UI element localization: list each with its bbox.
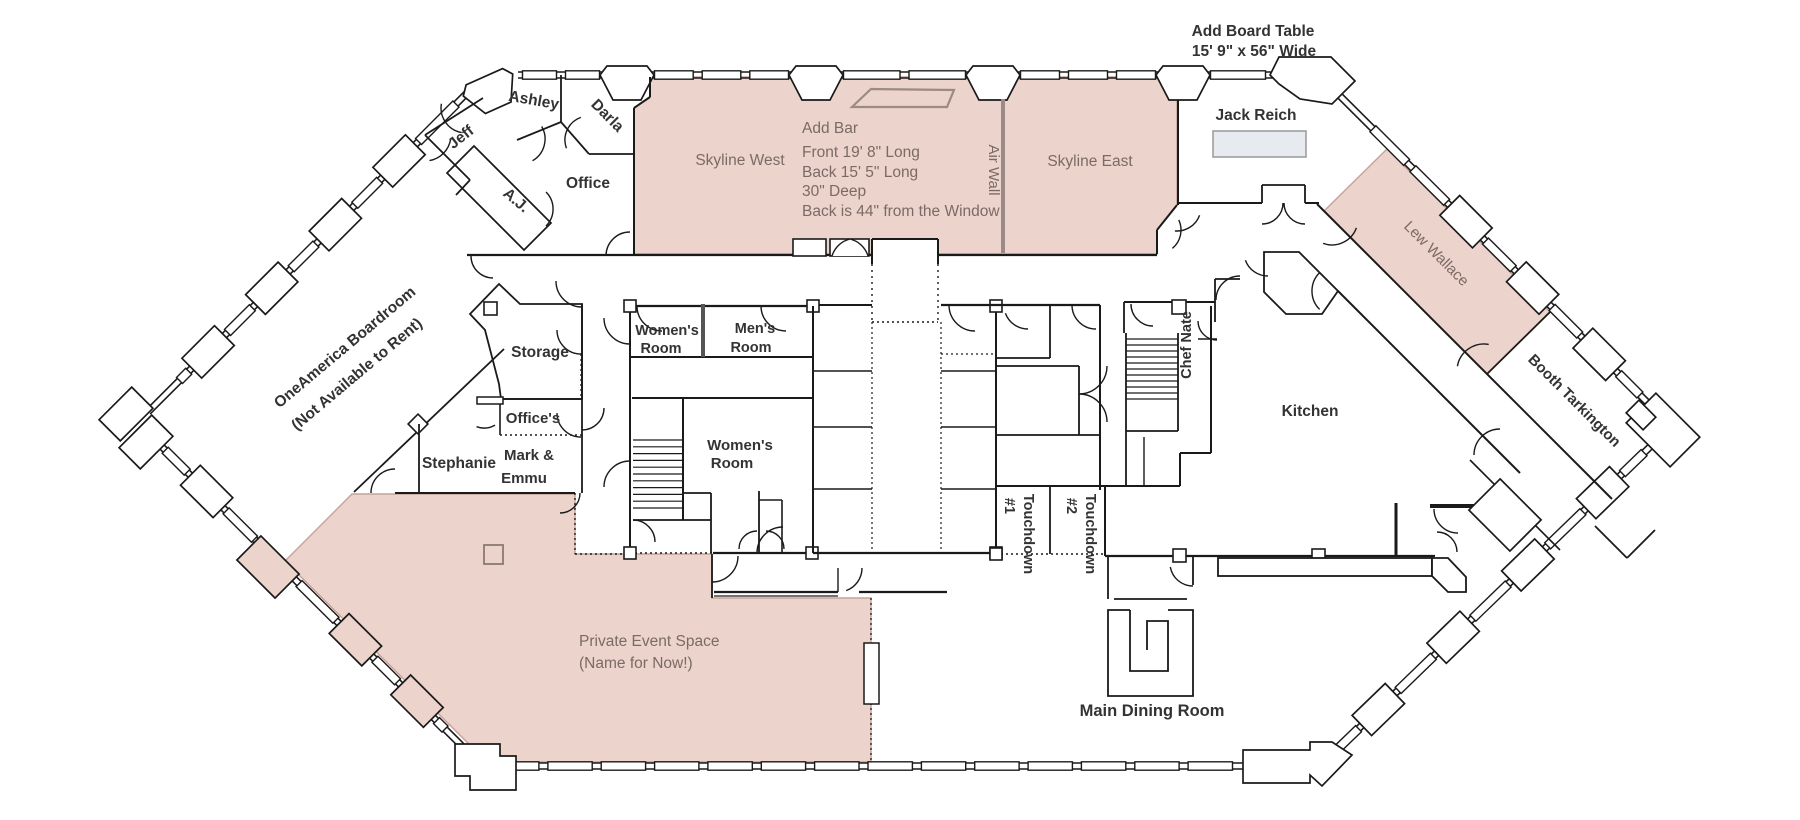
svg-text:Office: Office: [566, 175, 610, 192]
svg-text:Touchdown: Touchdown: [1082, 494, 1098, 574]
svg-text:Emmu: Emmu: [501, 470, 547, 487]
svg-text:Women's: Women's: [707, 437, 773, 454]
svg-text:#1: #1: [1001, 498, 1017, 514]
svg-text:#2: #2: [1063, 498, 1079, 514]
svg-text:Room: Room: [711, 455, 754, 472]
svg-text:Kitchen: Kitchen: [1282, 403, 1339, 420]
svg-text:Chef Nate: Chef Nate: [1179, 311, 1195, 379]
svg-text:30" Deep: 30" Deep: [802, 183, 866, 200]
svg-text:Main Dining Room: Main Dining Room: [1080, 702, 1225, 720]
svg-text:Storage: Storage: [511, 344, 569, 361]
svg-text:Skyline East: Skyline East: [1047, 153, 1133, 170]
svg-text:Private Event Space: Private Event Space: [579, 633, 719, 650]
svg-text:Air Wall: Air Wall: [985, 144, 1002, 195]
svg-text:Jack Reich: Jack Reich: [1216, 107, 1297, 124]
svg-text:Back is 44" from the Window: Back is 44" from the Window: [802, 203, 1000, 220]
svg-text:Men's: Men's: [735, 321, 776, 337]
svg-text:Women's: Women's: [635, 323, 699, 339]
svg-text:Room: Room: [730, 340, 771, 356]
svg-text:Office's: Office's: [506, 410, 560, 427]
svg-text:Add Bar: Add Bar: [802, 120, 858, 137]
svg-text:Skyline West: Skyline West: [695, 152, 785, 169]
svg-text:Room: Room: [640, 341, 681, 357]
svg-text:15' 9" x 56" Wide: 15' 9" x 56" Wide: [1192, 43, 1317, 60]
svg-text:Back 15' 5" Long: Back 15' 5" Long: [802, 164, 918, 181]
svg-text:(Name for Now!): (Name for Now!): [579, 655, 693, 672]
svg-text:Mark &: Mark &: [504, 447, 554, 464]
svg-text:Stephanie: Stephanie: [422, 455, 496, 472]
svg-text:Add Board Table: Add Board Table: [1192, 23, 1315, 40]
svg-text:Touchdown: Touchdown: [1020, 494, 1036, 574]
svg-text:Front 19' 8" Long: Front 19' 8" Long: [802, 144, 920, 161]
